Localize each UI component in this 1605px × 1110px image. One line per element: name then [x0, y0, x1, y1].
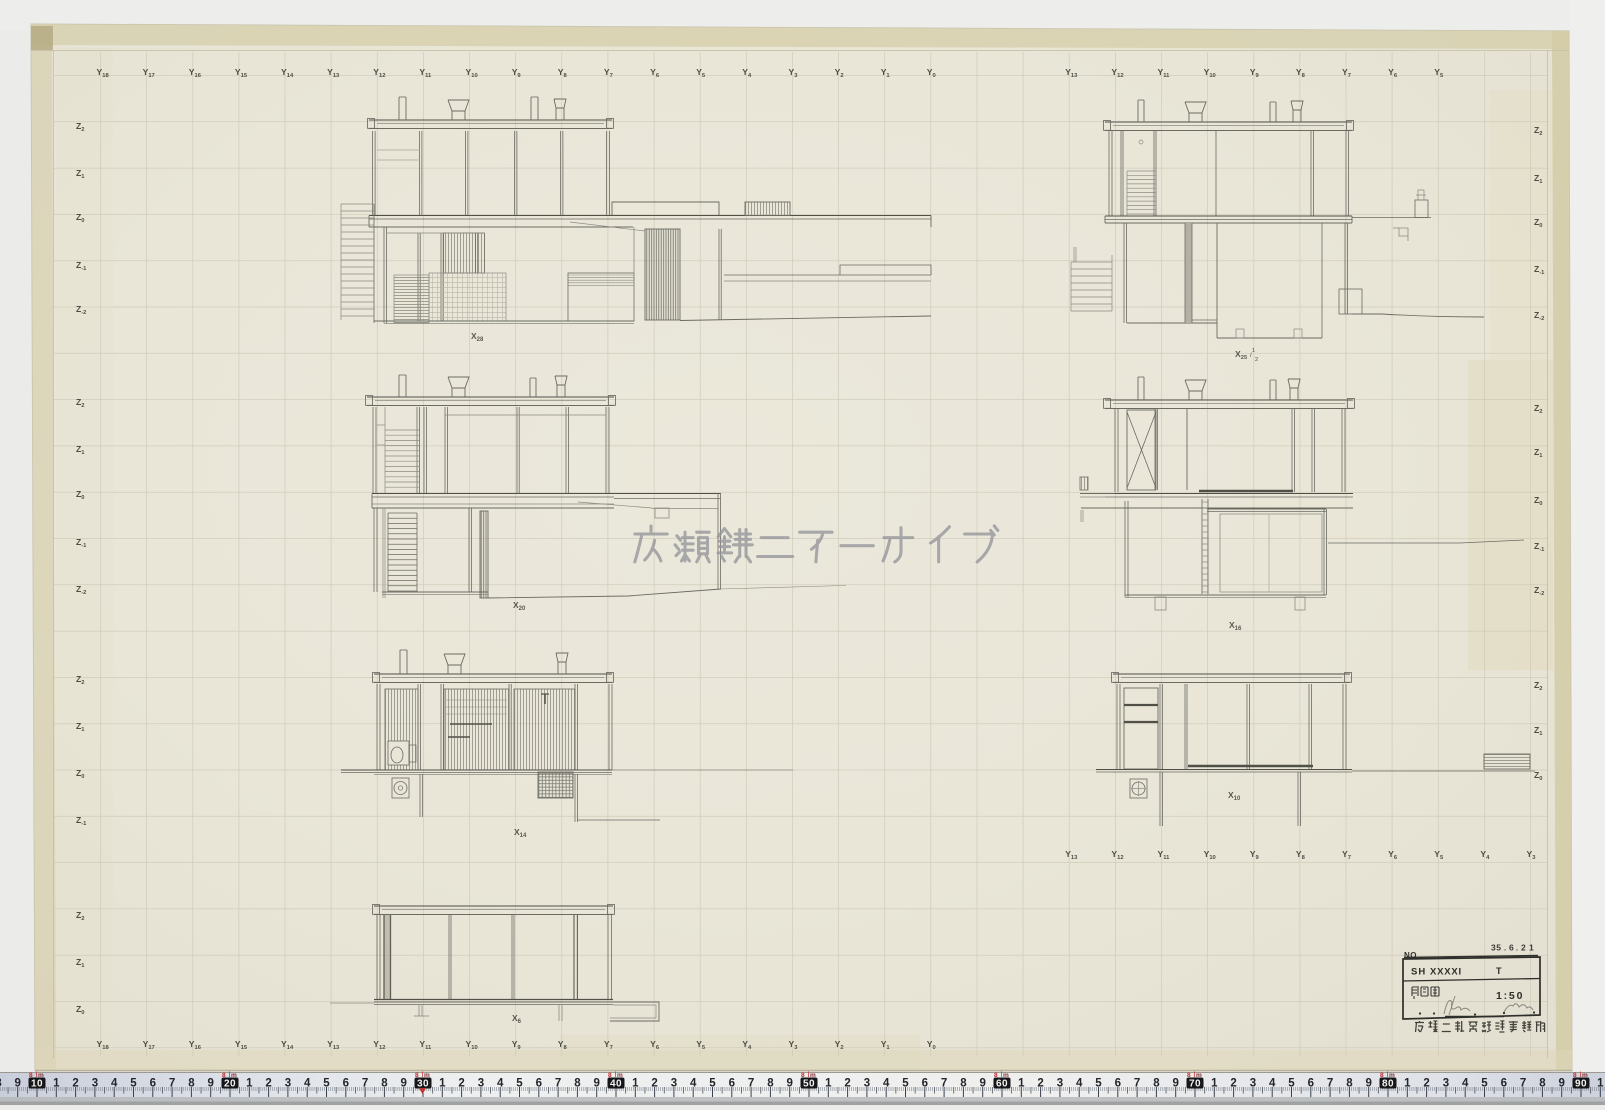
svg-text:5: 5: [516, 1078, 523, 1090]
svg-text:m: m: [810, 1072, 816, 1079]
svg-text:70: 70: [1189, 1079, 1201, 1090]
svg-text:1: 1: [1529, 943, 1534, 953]
svg-text:9: 9: [979, 1078, 985, 1090]
svg-text:8: 8: [1346, 1078, 1353, 1090]
svg-text:20: 20: [224, 1079, 236, 1090]
svg-text:T: T: [1496, 966, 1502, 976]
svg-text:1: 1: [246, 1078, 253, 1090]
svg-text:3: 3: [864, 1078, 870, 1090]
svg-text:m: m: [617, 1072, 623, 1079]
svg-text:5: 5: [1481, 1078, 1488, 1090]
svg-text:2: 2: [844, 1078, 850, 1090]
svg-text:1:50: 1:50: [1496, 990, 1524, 1002]
svg-text:50: 50: [803, 1079, 815, 1090]
svg-text:8: 8: [381, 1078, 388, 1090]
svg-text:3: 3: [1250, 1078, 1256, 1090]
svg-text:7: 7: [1327, 1078, 1333, 1090]
svg-text:5: 5: [323, 1078, 330, 1090]
svg-text:8: 8: [574, 1078, 581, 1090]
svg-text:9: 9: [1365, 1078, 1371, 1090]
svg-text:3: 3: [1057, 1078, 1063, 1090]
svg-text:SH: SH: [1411, 967, 1426, 978]
svg-text:m: m: [38, 1072, 44, 1079]
svg-text:8: 8: [994, 1072, 998, 1079]
svg-text:9: 9: [207, 1078, 213, 1090]
svg-text:6: 6: [1501, 1078, 1507, 1090]
svg-text:1: 1: [825, 1078, 832, 1090]
svg-text:6: 6: [1308, 1078, 1314, 1090]
svg-text:3: 3: [1443, 1078, 1449, 1090]
svg-text:8: 8: [1573, 1072, 1577, 1079]
svg-text:2: 2: [1230, 1078, 1236, 1090]
svg-text:5: 5: [1095, 1078, 1102, 1090]
svg-text:m: m: [1389, 1072, 1395, 1079]
svg-text:6: 6: [1115, 1078, 1121, 1090]
svg-text:m: m: [424, 1072, 430, 1079]
svg-text:5: 5: [1288, 1078, 1295, 1090]
svg-text:4: 4: [1076, 1078, 1083, 1090]
svg-text:4: 4: [497, 1078, 504, 1090]
svg-text:1: 1: [1404, 1078, 1411, 1090]
svg-text:7: 7: [748, 1078, 754, 1090]
svg-text:6: 6: [1509, 943, 1514, 953]
svg-text:8: 8: [608, 1072, 612, 1079]
svg-text:2: 2: [265, 1078, 271, 1090]
svg-text:6: 6: [922, 1078, 928, 1090]
svg-text:40: 40: [610, 1079, 622, 1090]
svg-text:m: m: [1196, 1072, 1202, 1079]
svg-text:8: 8: [960, 1078, 967, 1090]
svg-text:10: 10: [31, 1079, 43, 1090]
svg-text:9: 9: [1172, 1078, 1178, 1090]
svg-text:2: 2: [1037, 1078, 1043, 1090]
svg-text:8: 8: [1153, 1078, 1160, 1090]
svg-text:5: 5: [709, 1078, 716, 1090]
svg-text:9: 9: [14, 1078, 20, 1090]
svg-text:8: 8: [1187, 1072, 1191, 1079]
svg-text:6: 6: [729, 1078, 735, 1090]
svg-text:4: 4: [883, 1078, 890, 1090]
svg-text:3: 3: [92, 1078, 98, 1090]
svg-text:8: 8: [801, 1072, 805, 1079]
svg-text:7: 7: [169, 1078, 175, 1090]
svg-text:1: 1: [1018, 1078, 1025, 1090]
svg-text:1: 1: [1211, 1078, 1218, 1090]
svg-text:2: 2: [1521, 943, 1526, 953]
svg-text:9: 9: [400, 1078, 406, 1090]
svg-text:7: 7: [1520, 1078, 1526, 1090]
svg-text:.: .: [1504, 944, 1506, 953]
svg-text:6: 6: [536, 1078, 542, 1090]
svg-text:4: 4: [690, 1078, 697, 1090]
svg-text:3: 3: [478, 1078, 484, 1090]
svg-text:9: 9: [593, 1078, 599, 1090]
svg-text:m: m: [1582, 1072, 1588, 1079]
svg-text:80: 80: [1382, 1079, 1394, 1090]
svg-text:.: .: [1516, 944, 1518, 953]
svg-text:35: 35: [1491, 943, 1501, 953]
svg-text:60: 60: [996, 1079, 1008, 1090]
svg-text:4: 4: [304, 1078, 311, 1090]
svg-text:1: 1: [1252, 348, 1255, 354]
svg-text:7: 7: [1134, 1078, 1140, 1090]
svg-text:2: 2: [651, 1078, 657, 1090]
svg-text:8: 8: [29, 1072, 33, 1079]
svg-text:6: 6: [150, 1078, 156, 1090]
svg-text:8: 8: [1380, 1072, 1384, 1079]
svg-text:XXXXI: XXXXI: [1430, 967, 1462, 978]
svg-text:90: 90: [1575, 1079, 1587, 1090]
svg-text:7: 7: [941, 1078, 947, 1090]
svg-text:2: 2: [458, 1078, 464, 1090]
svg-text:4: 4: [1269, 1078, 1276, 1090]
svg-text:4: 4: [111, 1078, 118, 1090]
svg-text:3: 3: [671, 1078, 677, 1090]
svg-text:1: 1: [439, 1078, 446, 1090]
svg-text:8: 8: [415, 1072, 419, 1079]
svg-text:9: 9: [786, 1078, 792, 1090]
svg-text:1: 1: [632, 1078, 639, 1090]
svg-text:1: 1: [53, 1078, 60, 1090]
svg-text:2: 2: [72, 1078, 78, 1090]
svg-text:5: 5: [130, 1078, 137, 1090]
svg-text:m: m: [1003, 1072, 1009, 1079]
svg-text:30: 30: [417, 1079, 429, 1090]
svg-text:6: 6: [343, 1078, 349, 1090]
svg-text:7: 7: [555, 1078, 561, 1090]
svg-text:3: 3: [285, 1078, 291, 1090]
svg-text:m: m: [231, 1072, 237, 1079]
svg-text:9: 9: [1558, 1078, 1564, 1090]
svg-text:1: 1: [1597, 1078, 1604, 1090]
svg-text:2: 2: [1423, 1078, 1429, 1090]
svg-text:7: 7: [362, 1078, 368, 1090]
svg-text:5: 5: [902, 1078, 909, 1090]
svg-text:8: 8: [1539, 1078, 1546, 1090]
svg-text:8: 8: [188, 1078, 195, 1090]
svg-text:8: 8: [767, 1078, 774, 1090]
svg-text:2: 2: [1255, 357, 1258, 363]
svg-text:8: 8: [222, 1072, 226, 1079]
svg-text:4: 4: [1462, 1078, 1469, 1090]
